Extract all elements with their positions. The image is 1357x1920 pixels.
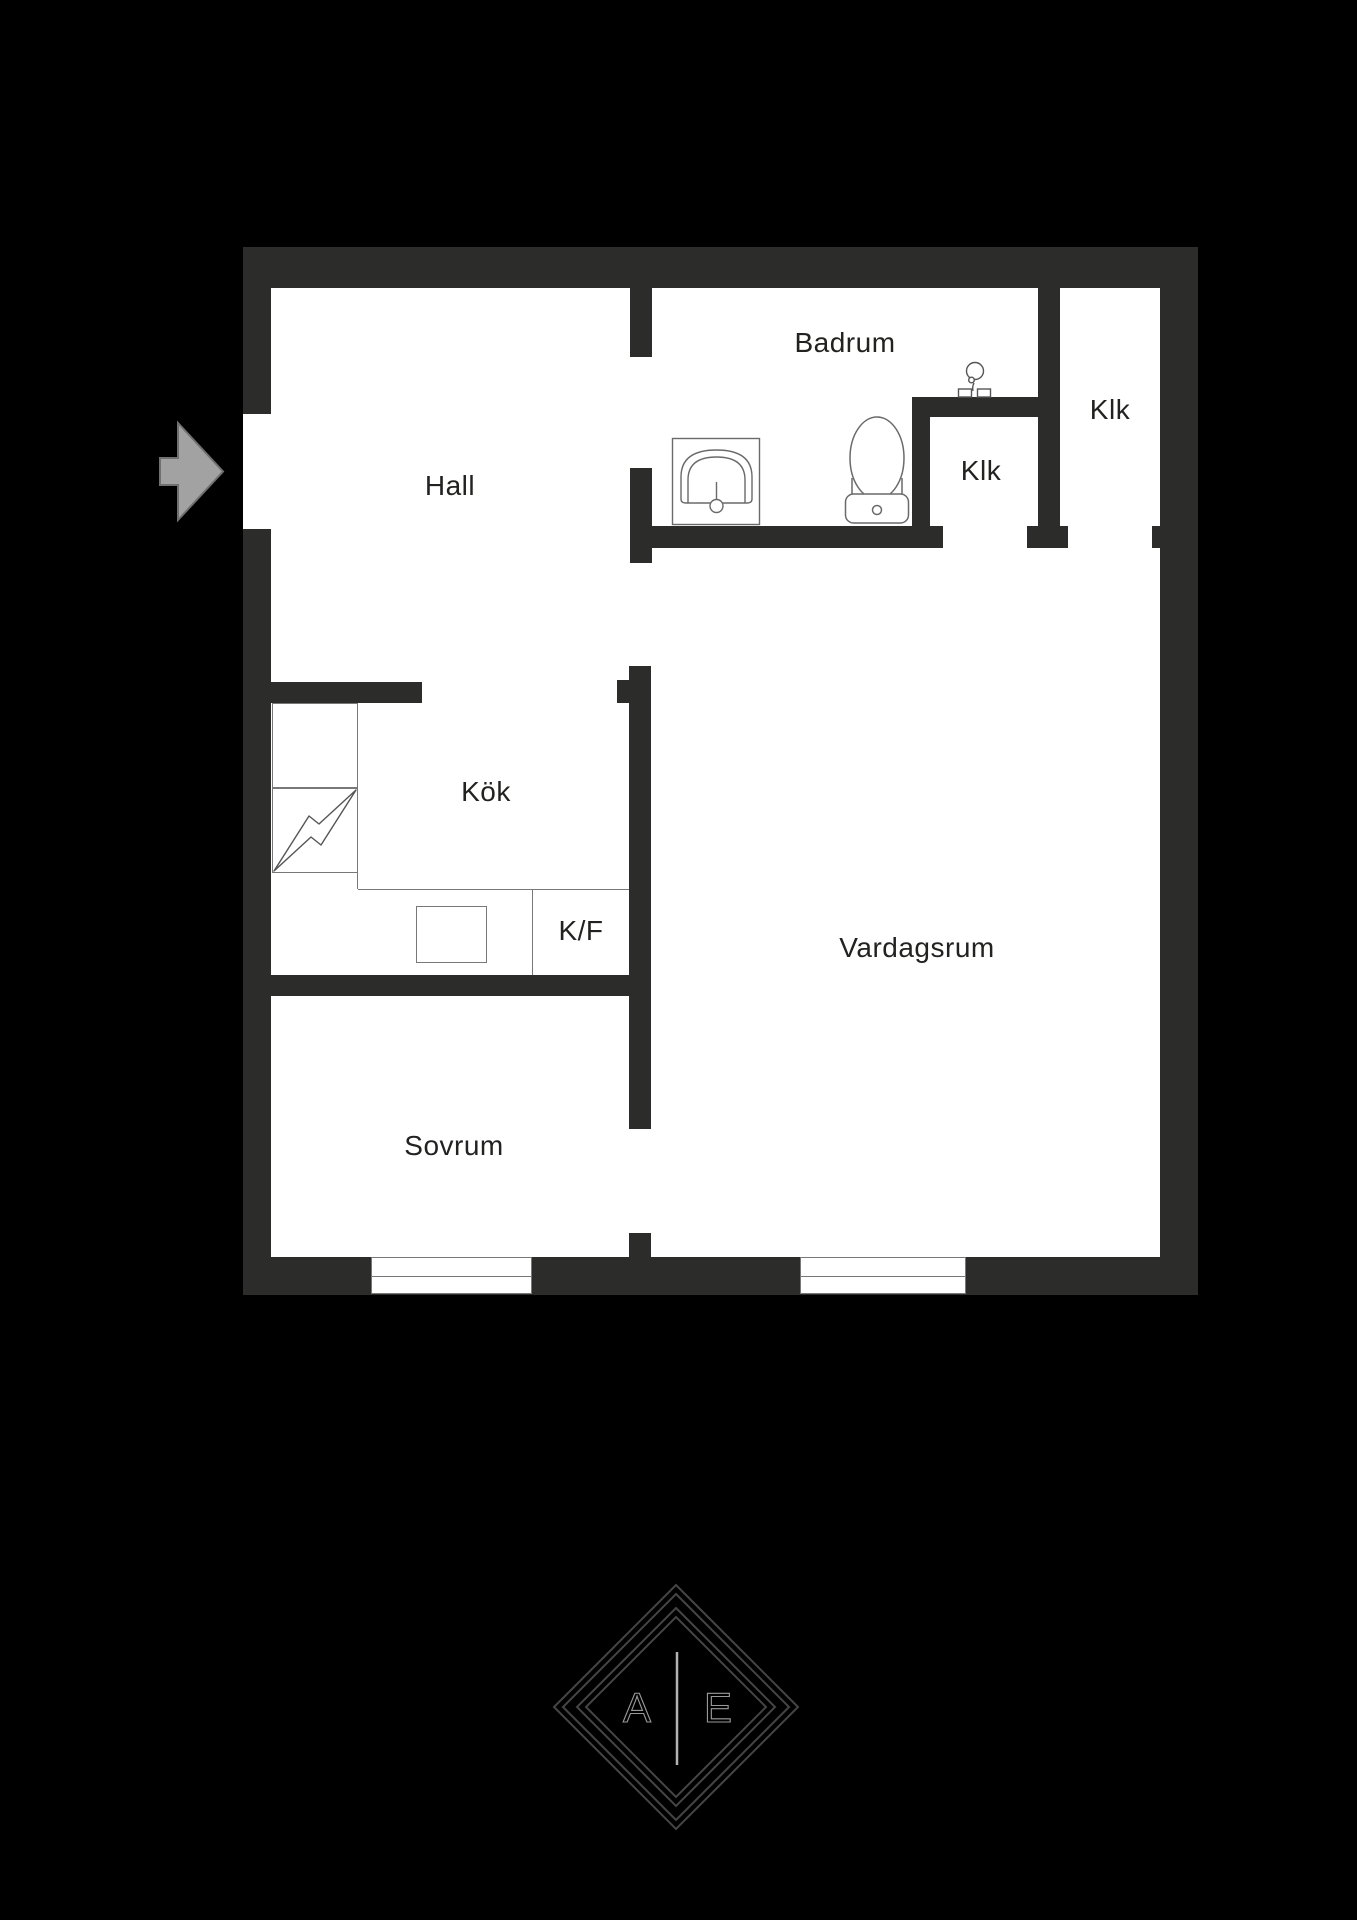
washbasin-icon <box>673 439 760 525</box>
entrance-arrow-icon <box>160 423 223 520</box>
fixtures-layer: A E <box>0 0 1357 1920</box>
logo-letter-right: E <box>704 1684 732 1731</box>
logo-letter-left: A <box>623 1684 651 1731</box>
toilet-icon <box>846 417 909 523</box>
floor-plan-page: A E Hall Badrum Klk Klk Kök K/F Vardagsr… <box>0 0 1357 1920</box>
room-label-badrum: Badrum <box>794 327 895 359</box>
room-label-sovrum: Sovrum <box>404 1130 503 1162</box>
mixer-tap-icon <box>959 363 991 398</box>
room-label-klk-inner: Klk <box>961 455 1001 487</box>
room-label-kok: Kök <box>461 776 511 808</box>
lightning-icon <box>274 790 356 871</box>
room-label-kf: K/F <box>558 915 603 947</box>
room-label-vardagsrum: Vardagsrum <box>839 932 994 964</box>
room-label-klk-right: Klk <box>1090 394 1130 426</box>
logo: A E <box>554 1585 798 1829</box>
room-label-hall: Hall <box>425 470 475 502</box>
